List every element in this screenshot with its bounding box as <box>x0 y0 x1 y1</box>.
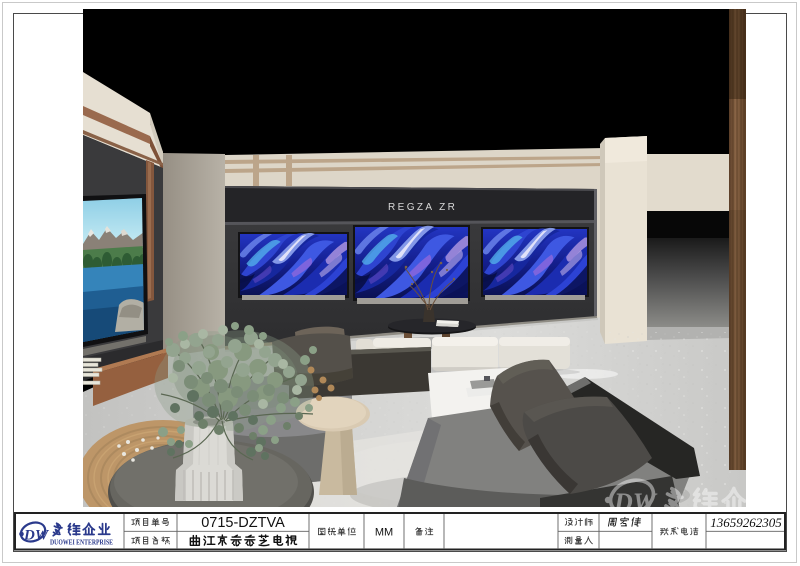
svg-text:DW: DW <box>23 528 50 544</box>
svg-text:13659262305: 13659262305 <box>710 515 782 530</box>
svg-text:0715-DZTVA: 0715-DZTVA <box>201 515 285 531</box>
svg-text:MM: MM <box>375 527 393 539</box>
svg-text:DUOWEI ENTERPRISE: DUOWEI ENTERPRISE <box>50 540 113 547</box>
